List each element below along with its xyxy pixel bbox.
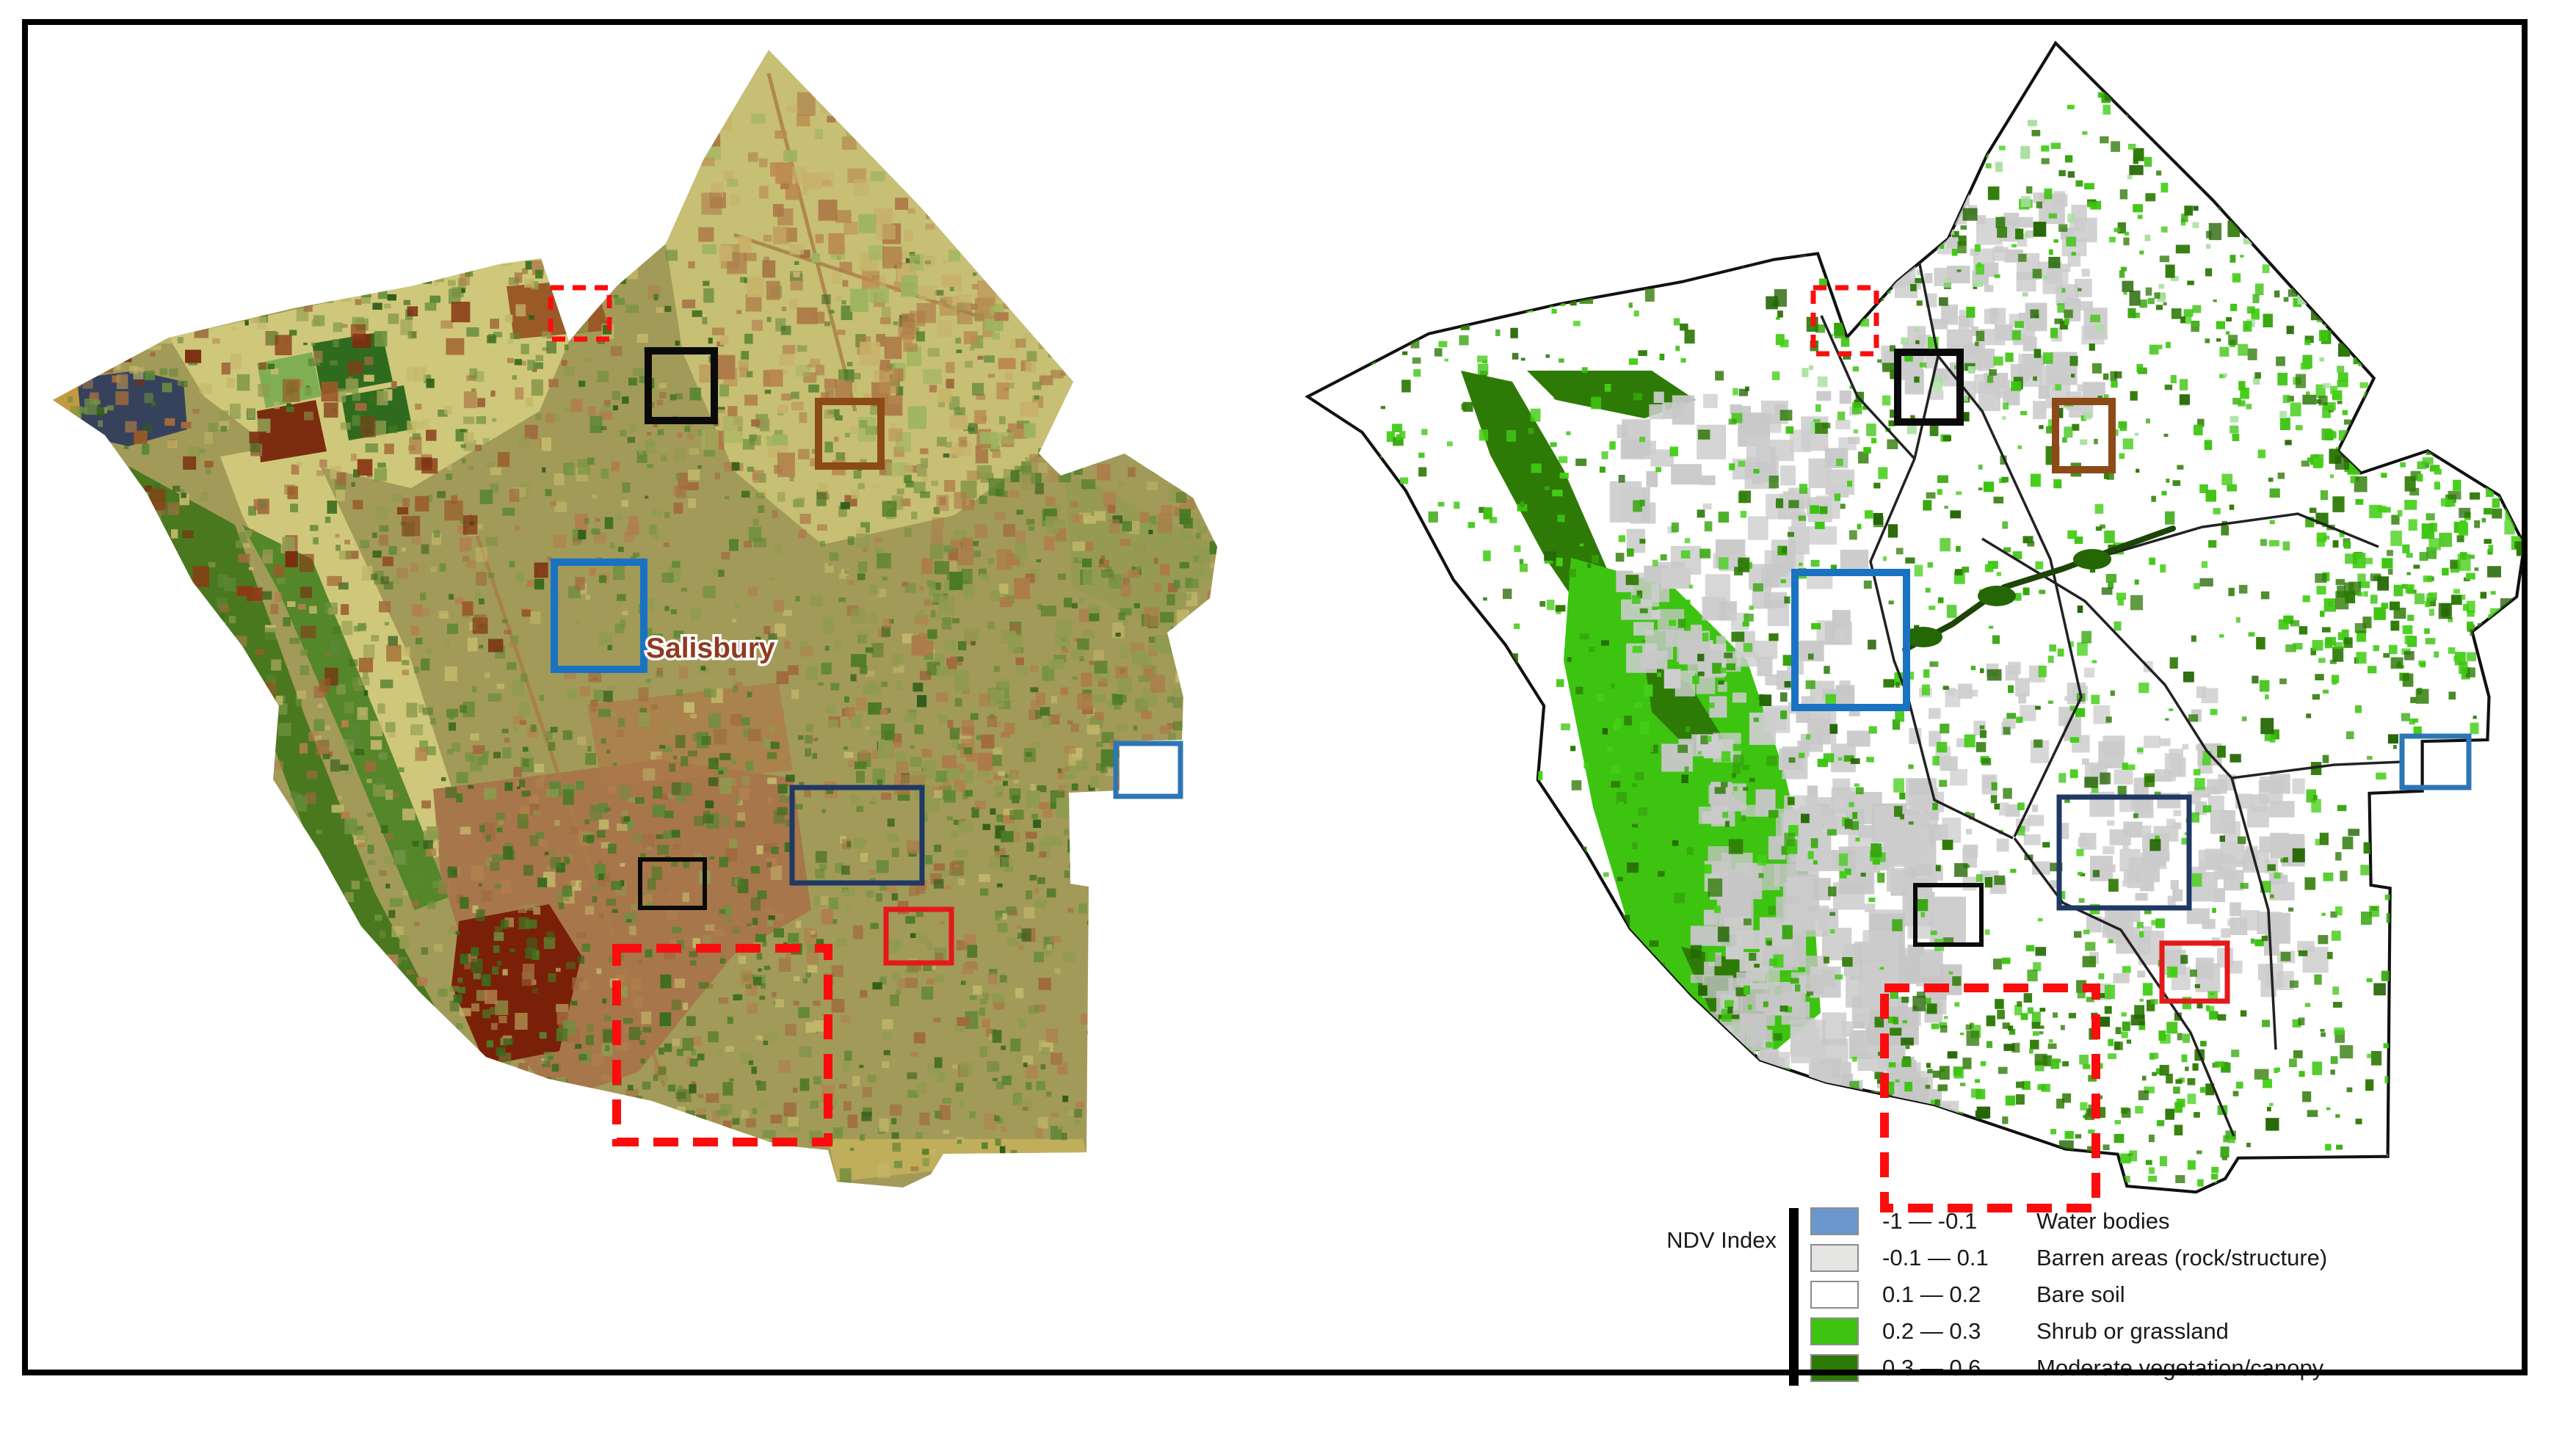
raster-speckle bbox=[1103, 1153, 1114, 1160]
raster-speckle bbox=[957, 303, 973, 324]
raster-speckle bbox=[908, 208, 915, 214]
raster-speckle bbox=[954, 849, 968, 858]
raster-speckle bbox=[157, 1054, 165, 1061]
raster-speckle bbox=[1125, 310, 1134, 322]
raster-speckle bbox=[971, 197, 982, 204]
raster-speckle bbox=[95, 1040, 101, 1048]
raster-speckle bbox=[229, 616, 236, 623]
raster-speckle bbox=[136, 1093, 142, 1101]
raster-speckle bbox=[522, 972, 534, 986]
raster-speckle bbox=[389, 426, 398, 433]
raster-speckle bbox=[150, 489, 166, 510]
raster-speckle bbox=[360, 416, 376, 437]
raster-speckle bbox=[344, 539, 350, 544]
raster-speckle bbox=[690, 1058, 698, 1066]
raster-speckle bbox=[465, 268, 474, 277]
raster-speckle bbox=[931, 611, 936, 617]
raster-speckle bbox=[269, 911, 279, 920]
raster-speckle bbox=[89, 263, 96, 271]
raster-speckle bbox=[374, 468, 387, 481]
raster-speckle bbox=[1154, 558, 1158, 564]
raster-speckle bbox=[778, 405, 788, 413]
raster-speckle bbox=[218, 900, 225, 907]
raster-speckle bbox=[868, 613, 877, 623]
raster-speckle bbox=[993, 1078, 998, 1082]
class-speckle bbox=[1799, 484, 1807, 494]
raster-speckle bbox=[1153, 1184, 1164, 1192]
raster-speckle bbox=[756, 492, 765, 498]
class-speckle bbox=[2200, 1041, 2207, 1047]
raster-speckle bbox=[958, 548, 973, 565]
raster-speckle bbox=[1109, 1196, 1117, 1205]
raster-speckle bbox=[719, 753, 730, 760]
class-speckle bbox=[2414, 410, 2425, 416]
raster-speckle bbox=[739, 788, 750, 800]
class-speckle bbox=[1847, 731, 1871, 747]
raster-speckle bbox=[693, 1119, 706, 1130]
raster-speckle bbox=[729, 194, 739, 206]
raster-speckle bbox=[1128, 467, 1136, 477]
class-speckle bbox=[1854, 429, 1859, 433]
raster-speckle bbox=[1108, 945, 1116, 949]
raster-speckle bbox=[854, 179, 868, 196]
raster-speckle bbox=[926, 211, 937, 219]
class-speckle bbox=[1782, 925, 1793, 939]
raster-speckle bbox=[253, 1117, 266, 1132]
raster-speckle bbox=[385, 884, 390, 888]
raster-speckle bbox=[979, 694, 990, 707]
raster-speckle bbox=[585, 906, 595, 915]
raster-speckle bbox=[1147, 1071, 1157, 1079]
raster-speckle bbox=[268, 760, 273, 766]
raster-speckle bbox=[115, 391, 128, 405]
raster-speckle bbox=[747, 1003, 758, 1014]
raster-speckle bbox=[358, 459, 373, 476]
raster-speckle bbox=[1000, 1146, 1006, 1154]
raster-speckle bbox=[482, 890, 492, 902]
raster-speckle bbox=[920, 448, 928, 454]
raster-speckle bbox=[451, 1063, 457, 1067]
raster-speckle bbox=[222, 747, 229, 753]
raster-speckle bbox=[242, 1150, 250, 1155]
raster-speckle bbox=[1162, 329, 1167, 335]
raster-speckle bbox=[222, 273, 231, 283]
raster-speckle bbox=[893, 742, 901, 748]
raster-speckle bbox=[1081, 479, 1095, 489]
class-speckle bbox=[2208, 540, 2216, 548]
raster-speckle bbox=[366, 443, 378, 452]
raster-speckle bbox=[485, 990, 497, 1004]
raster-speckle bbox=[871, 171, 885, 181]
class-speckle bbox=[1516, 894, 1521, 897]
raster-speckle bbox=[426, 379, 434, 388]
raster-speckle bbox=[492, 418, 496, 422]
raster-speckle bbox=[421, 948, 428, 955]
raster-speckle bbox=[563, 730, 572, 740]
raster-speckle bbox=[911, 130, 928, 154]
raster-speckle bbox=[1180, 509, 1191, 524]
raster-speckle bbox=[708, 338, 713, 343]
raster-speckle bbox=[170, 837, 175, 844]
raster-speckle bbox=[667, 910, 678, 920]
class-speckle bbox=[1997, 839, 2009, 852]
class-speckle bbox=[2091, 695, 2100, 705]
raster-speckle bbox=[212, 1157, 222, 1169]
raster-speckle bbox=[869, 287, 889, 302]
raster-speckle bbox=[168, 1182, 174, 1189]
raster-speckle bbox=[81, 367, 85, 371]
raster-speckle bbox=[160, 368, 167, 376]
raster-speckle bbox=[676, 689, 683, 696]
raster-speckle bbox=[1199, 327, 1205, 333]
raster-speckle bbox=[488, 639, 503, 652]
raster-speckle bbox=[996, 382, 1009, 399]
raster-speckle bbox=[502, 619, 508, 623]
raster-speckle bbox=[617, 1160, 623, 1168]
raster-speckle bbox=[175, 630, 186, 644]
raster-speckle bbox=[360, 540, 370, 548]
raster-speckle bbox=[605, 1045, 609, 1051]
raster-speckle bbox=[297, 1143, 306, 1155]
raster-speckle bbox=[352, 881, 360, 890]
raster-speckle bbox=[168, 1023, 172, 1028]
raster-speckle bbox=[582, 944, 590, 952]
class-speckle bbox=[2375, 127, 2380, 131]
raster-speckle bbox=[578, 381, 585, 387]
raster-speckle bbox=[1175, 674, 1185, 683]
raster-speckle bbox=[287, 261, 297, 268]
raster-speckle bbox=[603, 1124, 616, 1140]
raster-speckle bbox=[915, 611, 924, 619]
raster-speckle bbox=[1073, 677, 1077, 680]
raster-speckle bbox=[1210, 302, 1216, 307]
raster-speckle bbox=[169, 728, 180, 736]
raster-speckle bbox=[1004, 524, 1016, 537]
raster-speckle bbox=[385, 954, 398, 967]
raster-speckle bbox=[832, 272, 841, 284]
raster-speckle bbox=[1179, 911, 1188, 917]
raster-speckle bbox=[360, 1044, 372, 1058]
raster-speckle bbox=[973, 550, 981, 557]
raster-speckle bbox=[300, 554, 314, 572]
class-speckle bbox=[2138, 683, 2149, 693]
raster-speckle bbox=[954, 865, 959, 868]
raster-speckle bbox=[1036, 693, 1045, 705]
raster-speckle bbox=[646, 894, 653, 903]
raster-speckle bbox=[323, 981, 328, 988]
raster-speckle bbox=[798, 449, 810, 459]
raster-speckle bbox=[1121, 584, 1131, 597]
raster-speckle bbox=[904, 230, 913, 241]
class-speckle bbox=[1632, 843, 1637, 849]
raster-speckle bbox=[887, 834, 899, 842]
raster-speckle bbox=[402, 516, 420, 537]
raster-speckle bbox=[919, 1113, 929, 1126]
raster-speckle bbox=[333, 626, 341, 635]
raster-speckle bbox=[101, 869, 107, 878]
raster-speckle bbox=[287, 486, 298, 499]
raster-speckle bbox=[81, 339, 89, 349]
raster-speckle bbox=[124, 446, 129, 448]
raster-speckle bbox=[1045, 497, 1056, 506]
raster-speckle bbox=[275, 592, 282, 602]
raster-speckle bbox=[977, 753, 993, 771]
raster-speckle bbox=[1120, 328, 1127, 333]
raster-speckle bbox=[162, 383, 173, 393]
raster-speckle bbox=[748, 587, 757, 596]
raster-speckle bbox=[1035, 483, 1044, 494]
class-speckle bbox=[2107, 821, 2114, 826]
raster-speckle bbox=[471, 948, 479, 956]
raster-speckle bbox=[167, 502, 179, 515]
raster-speckle bbox=[1181, 401, 1189, 407]
raster-speckle bbox=[664, 512, 670, 518]
raster-speckle bbox=[604, 1015, 611, 1021]
raster-speckle bbox=[977, 280, 996, 306]
raster-speckle bbox=[197, 1120, 202, 1124]
raster-speckle bbox=[82, 600, 87, 605]
raster-speckle bbox=[926, 855, 933, 865]
raster-speckle bbox=[1026, 832, 1037, 839]
class-speckle bbox=[1848, 437, 1860, 444]
raster-speckle bbox=[683, 1182, 692, 1191]
raster-speckle bbox=[305, 1050, 313, 1055]
raster-speckle bbox=[815, 83, 824, 90]
raster-speckle bbox=[1000, 491, 1008, 498]
raster-speckle bbox=[1011, 470, 1020, 482]
raster-speckle bbox=[227, 378, 236, 388]
raster-speckle bbox=[891, 1118, 896, 1124]
raster-speckle bbox=[76, 1047, 88, 1061]
raster-speckle bbox=[1031, 319, 1040, 330]
raster-speckle bbox=[720, 1104, 732, 1115]
raster-speckle bbox=[675, 473, 681, 479]
raster-speckle bbox=[1056, 619, 1072, 636]
raster-speckle bbox=[220, 857, 233, 868]
raster-speckle bbox=[186, 700, 195, 710]
raster-speckle bbox=[592, 677, 598, 681]
class-speckle bbox=[1737, 652, 1759, 667]
raster-speckle bbox=[91, 531, 98, 536]
raster-speckle bbox=[940, 921, 945, 925]
raster-speckle bbox=[1111, 347, 1121, 358]
raster-speckle bbox=[799, 641, 808, 649]
raster-speckle bbox=[266, 758, 273, 766]
raster-speckle bbox=[159, 335, 171, 343]
class-speckle bbox=[1654, 392, 1664, 403]
raster-speckle bbox=[389, 546, 397, 555]
class-speckle bbox=[1842, 957, 1853, 967]
raster-speckle bbox=[1065, 432, 1072, 440]
raster-speckle bbox=[232, 760, 242, 770]
class-speckle bbox=[2426, 638, 2436, 644]
raster-speckle bbox=[893, 974, 900, 982]
raster-speckle bbox=[850, 674, 856, 682]
raster-speckle bbox=[741, 491, 750, 498]
class-speckle bbox=[1719, 557, 1729, 570]
class-speckle bbox=[1744, 643, 1753, 652]
raster-speckle bbox=[283, 379, 300, 402]
raster-speckle bbox=[249, 567, 253, 570]
raster-speckle bbox=[1101, 570, 1114, 578]
raster-speckle bbox=[875, 538, 882, 543]
raster-speckle bbox=[580, 255, 585, 259]
raster-speckle bbox=[1117, 912, 1128, 920]
class-speckle bbox=[2213, 508, 2221, 514]
raster-speckle bbox=[838, 369, 848, 379]
raster-speckle bbox=[415, 747, 427, 761]
raster-speckle bbox=[1167, 1015, 1175, 1021]
raster-speckle bbox=[153, 825, 161, 835]
raster-speckle bbox=[1183, 666, 1191, 673]
raster-speckle bbox=[797, 308, 818, 324]
raster-speckle bbox=[81, 1105, 88, 1111]
raster-speckle bbox=[589, 250, 603, 269]
raster-speckle bbox=[622, 817, 628, 825]
raster-speckle bbox=[332, 805, 344, 813]
raster-speckle bbox=[880, 318, 891, 324]
raster-speckle bbox=[1004, 301, 1015, 309]
raster-speckle bbox=[84, 254, 97, 269]
raster-speckle bbox=[84, 732, 89, 736]
raster-speckle bbox=[155, 884, 159, 890]
class-speckle bbox=[2464, 1187, 2470, 1192]
raster-speckle bbox=[351, 454, 357, 461]
raster-speckle bbox=[585, 357, 591, 363]
raster-speckle bbox=[848, 1115, 858, 1128]
raster-speckle bbox=[1050, 837, 1062, 846]
class-speckle bbox=[1781, 252, 1788, 257]
raster-speckle bbox=[1081, 344, 1089, 351]
raster-speckle bbox=[476, 416, 487, 424]
class-speckle bbox=[2445, 405, 2452, 411]
raster-speckle bbox=[497, 684, 505, 689]
class-speckle bbox=[1448, 660, 1458, 666]
raster-speckle bbox=[732, 927, 740, 934]
raster-speckle bbox=[675, 978, 685, 988]
raster-speckle bbox=[68, 963, 79, 976]
raster-speckle bbox=[248, 892, 255, 901]
raster-speckle bbox=[1010, 1039, 1020, 1052]
raster-speckle bbox=[400, 1019, 405, 1025]
raster-speckle bbox=[360, 1165, 371, 1174]
class-speckle bbox=[2289, 1058, 2297, 1067]
raster-speckle bbox=[1112, 694, 1123, 705]
class-speckle bbox=[1808, 654, 1814, 660]
class-speckle bbox=[1731, 1087, 1756, 1120]
raster-speckle bbox=[367, 779, 373, 783]
raster-speckle bbox=[1080, 844, 1084, 849]
raster-speckle bbox=[1122, 767, 1127, 771]
raster-speckle bbox=[352, 393, 361, 401]
raster-speckle bbox=[1140, 354, 1150, 360]
raster-speckle bbox=[664, 1044, 672, 1052]
raster-speckle bbox=[237, 586, 253, 597]
class-speckle bbox=[1554, 528, 1559, 534]
class-speckle bbox=[1678, 619, 1686, 628]
raster-speckle bbox=[813, 1076, 821, 1084]
raster-speckle bbox=[1038, 448, 1048, 457]
raster-speckle bbox=[952, 1064, 957, 1069]
raster-speckle bbox=[862, 271, 879, 289]
raster-speckle bbox=[1023, 1063, 1028, 1067]
raster-speckle bbox=[645, 950, 653, 958]
class-speckle bbox=[1709, 1145, 1737, 1176]
raster-speckle bbox=[637, 1182, 647, 1194]
raster-speckle bbox=[512, 680, 524, 697]
raster-speckle bbox=[138, 1074, 142, 1080]
raster-speckle bbox=[702, 736, 711, 745]
raster-speckle bbox=[694, 1156, 702, 1163]
raster-speckle bbox=[797, 115, 810, 126]
raster-speckle bbox=[1045, 516, 1059, 533]
class-speckle bbox=[1670, 130, 1679, 139]
raster-speckle bbox=[656, 307, 664, 313]
raster-speckle bbox=[911, 1166, 919, 1171]
class-speckle bbox=[1421, 1006, 1429, 1011]
raster-speckle bbox=[283, 1127, 291, 1134]
raster-speckle bbox=[1079, 597, 1086, 603]
class-speckle bbox=[2119, 270, 2125, 277]
class-speckle bbox=[1437, 737, 1443, 745]
raster-speckle bbox=[484, 788, 496, 799]
class-speckle bbox=[1520, 564, 1528, 572]
raster-speckle bbox=[910, 124, 924, 133]
raster-speckle bbox=[174, 663, 182, 668]
raster-speckle bbox=[93, 506, 98, 512]
raster-speckle bbox=[914, 1032, 926, 1043]
raster-speckle bbox=[860, 750, 869, 760]
raster-speckle bbox=[1099, 1017, 1109, 1026]
raster-speckle bbox=[265, 1008, 271, 1013]
raster-speckle bbox=[775, 1000, 784, 1008]
raster-speckle bbox=[798, 735, 804, 740]
raster-speckle bbox=[413, 901, 418, 908]
class-speckle bbox=[1512, 896, 1517, 901]
raster-speckle bbox=[363, 1006, 371, 1017]
raster-speckle bbox=[1197, 323, 1205, 332]
raster-speckle bbox=[1157, 355, 1161, 358]
class-speckle bbox=[1749, 953, 1756, 961]
raster-speckle bbox=[603, 1030, 613, 1041]
class-speckle bbox=[2003, 788, 2011, 799]
raster-speckle bbox=[892, 1132, 899, 1139]
raster-speckle bbox=[822, 617, 835, 633]
raster-speckle bbox=[120, 585, 127, 594]
raster-speckle bbox=[970, 347, 974, 351]
raster-speckle bbox=[126, 539, 132, 544]
raster-speckle bbox=[449, 1066, 456, 1074]
raster-speckle bbox=[504, 782, 512, 791]
class-speckle bbox=[2084, 308, 2108, 340]
raster-speckle bbox=[533, 1201, 545, 1212]
raster-speckle bbox=[773, 227, 789, 244]
raster-speckle bbox=[427, 901, 435, 909]
class-speckle bbox=[1766, 1131, 1779, 1141]
raster-speckle bbox=[507, 662, 516, 669]
raster-speckle bbox=[841, 502, 850, 509]
raster-speckle bbox=[114, 753, 123, 763]
raster-speckle bbox=[123, 1096, 130, 1106]
class-speckle bbox=[2139, 931, 2144, 937]
raster-speckle bbox=[1064, 783, 1070, 788]
class-speckle bbox=[2173, 822, 2181, 829]
raster-speckle bbox=[404, 300, 410, 305]
class-speckle bbox=[1689, 585, 1694, 589]
raster-speckle bbox=[388, 294, 396, 301]
raster-speckle bbox=[758, 750, 768, 758]
raster-speckle bbox=[1100, 441, 1105, 446]
